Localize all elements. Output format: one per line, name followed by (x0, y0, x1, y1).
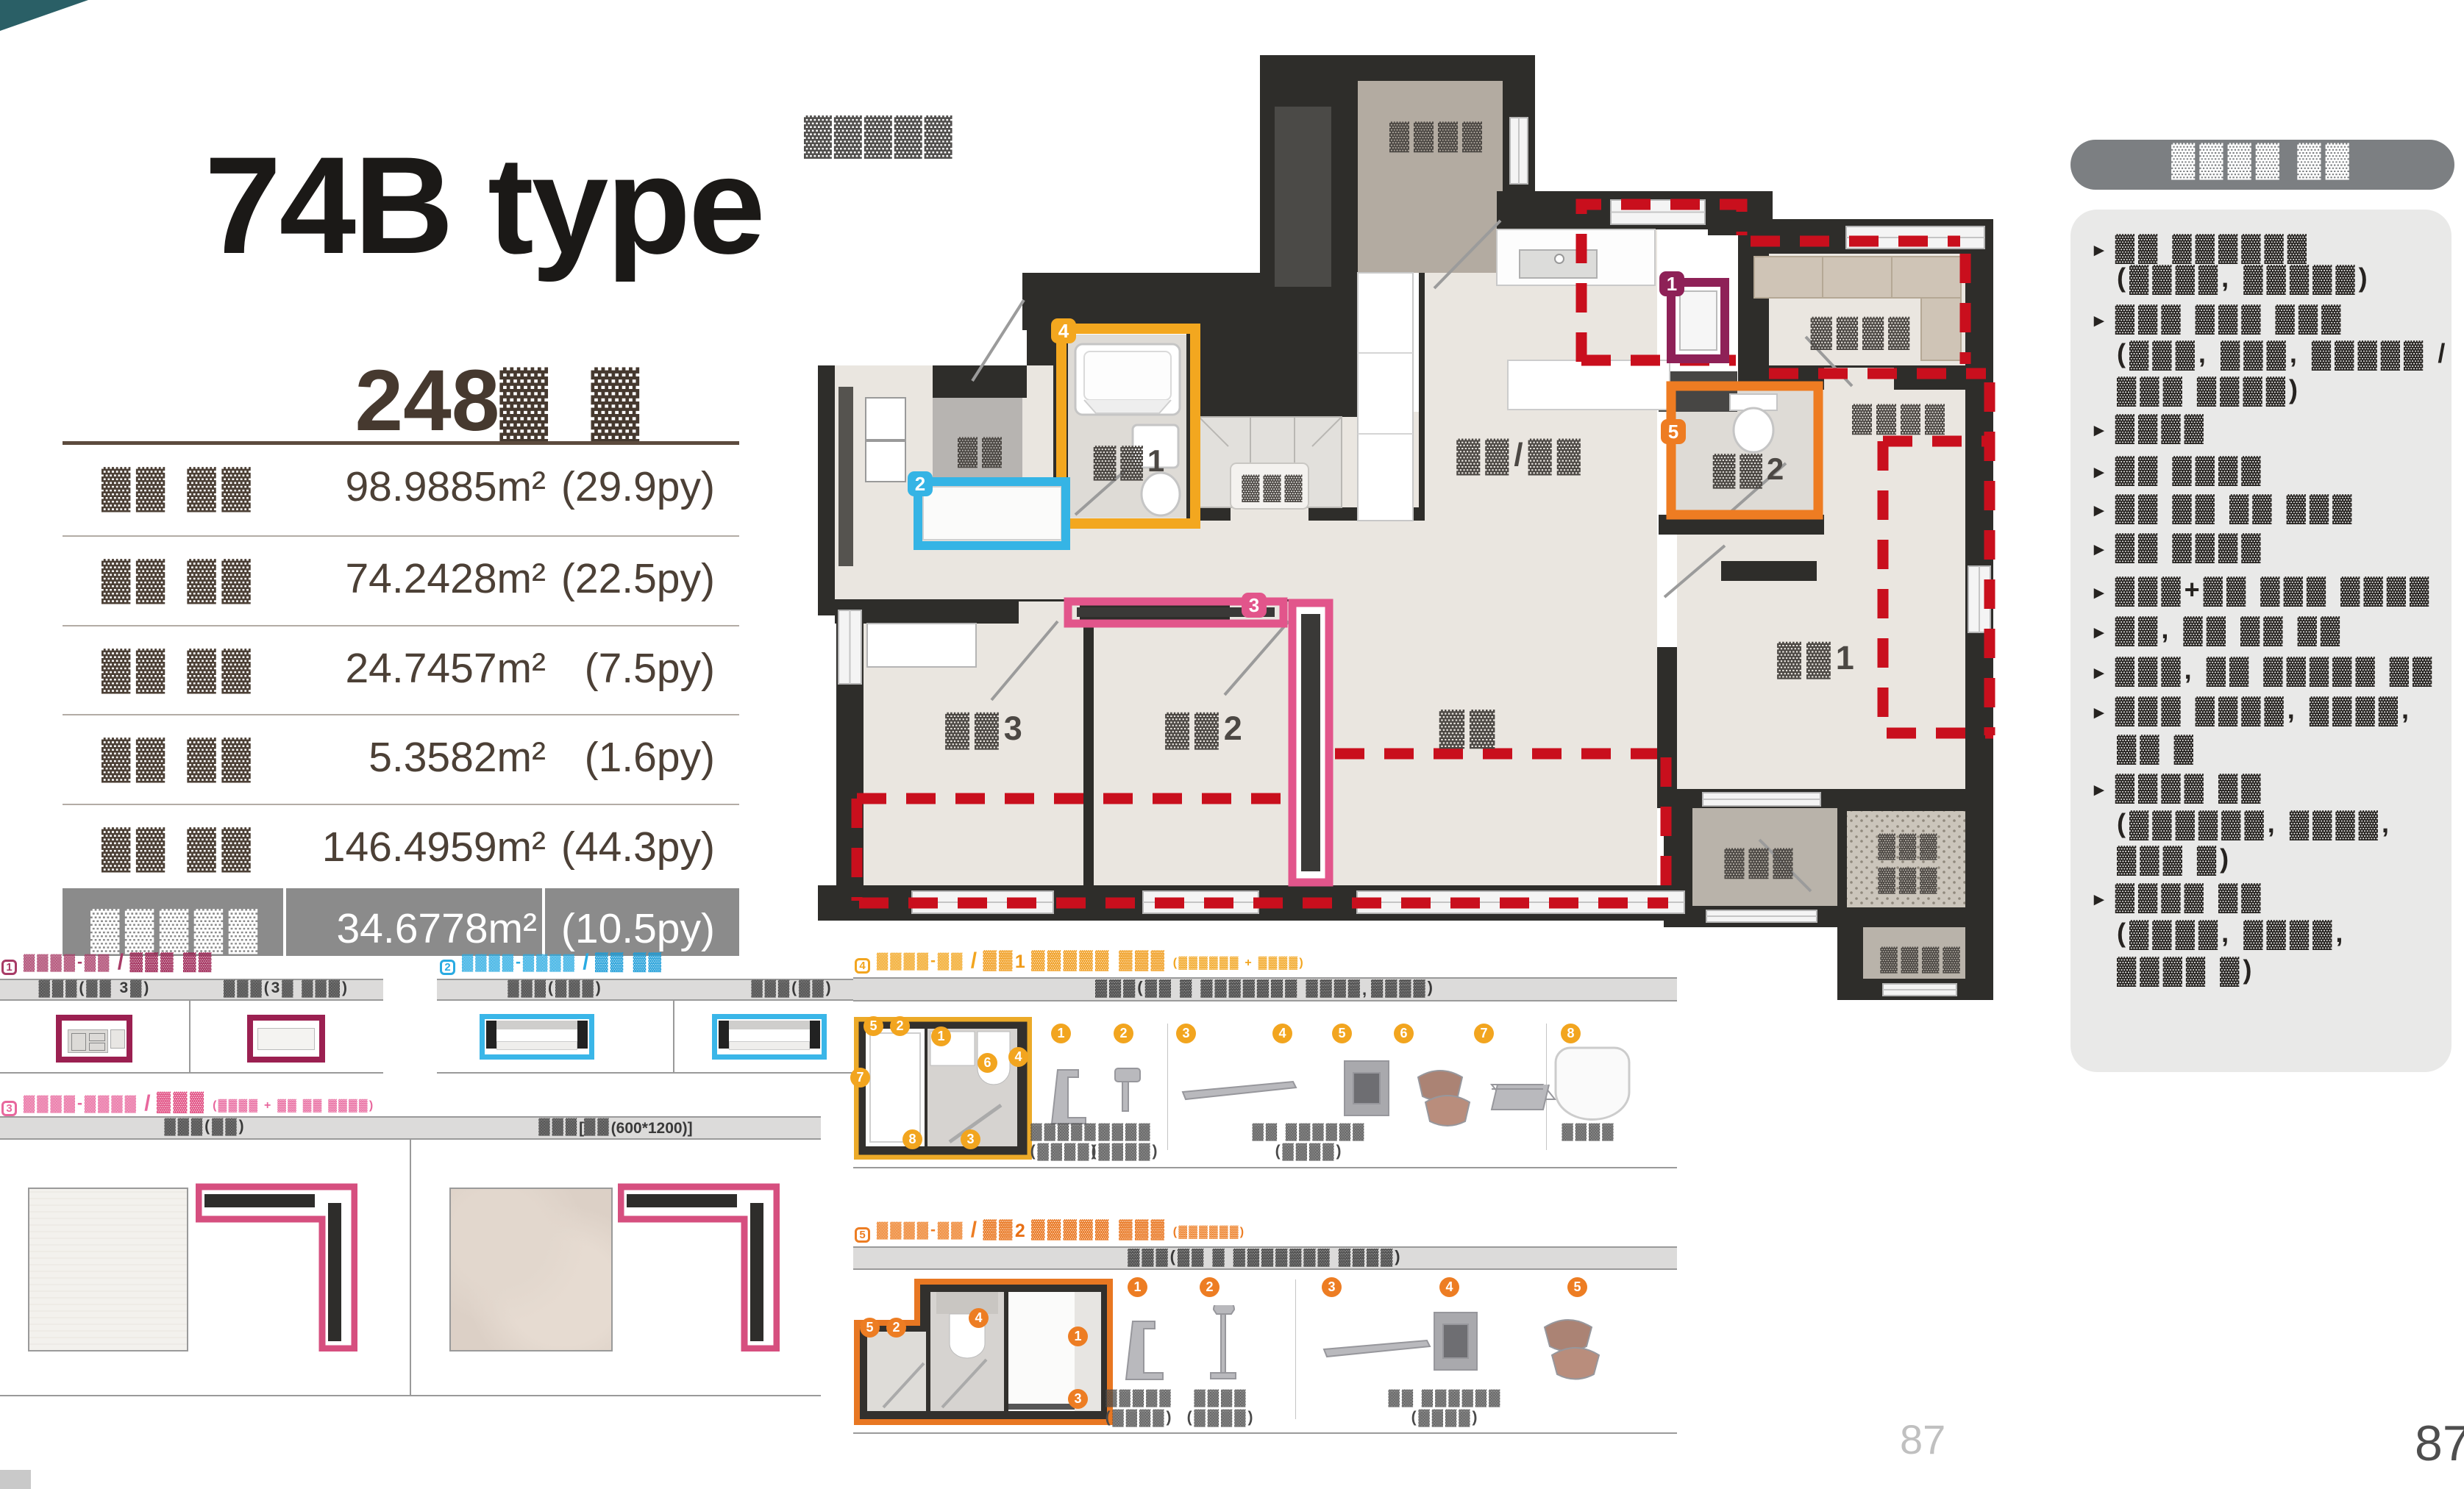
svg-text:▓▓1: ▓▓1 (1094, 443, 1169, 481)
svg-text:5: 5 (1668, 421, 1678, 443)
svg-text:▓▓1: ▓▓1 (1777, 639, 1859, 679)
svg-text:▓▓▓▓: ▓▓▓▓ (1852, 402, 1949, 435)
svg-text:3: 3 (1249, 594, 1259, 616)
svg-text:▓▓▓▓: ▓▓▓▓ (1880, 945, 1963, 974)
svg-text:▓▓▓: ▓▓▓ (1879, 832, 1941, 860)
svg-text:2: 2 (915, 473, 925, 495)
svg-text:▓▓▓▓: ▓▓▓▓ (1811, 315, 1915, 351)
svg-text:▓▓2: ▓▓2 (1165, 710, 1247, 750)
svg-text:1: 1 (1667, 273, 1677, 295)
svg-text:▓▓2: ▓▓2 (1713, 451, 1789, 489)
svg-text:▓▓▓: ▓▓▓ (1242, 473, 1306, 502)
svg-text:▓▓: ▓▓ (1439, 707, 1500, 749)
svg-text:▓▓▓: ▓▓▓ (1725, 846, 1798, 879)
svg-text:▓▓: ▓▓ (958, 435, 1006, 468)
svg-text:▓▓3: ▓▓3 (945, 710, 1028, 750)
svg-text:▓▓▓: ▓▓▓ (1879, 865, 1941, 894)
svg-text:▓▓▓▓▓: ▓▓▓▓▓ (804, 113, 955, 159)
svg-text:▓▓▓▓: ▓▓▓▓ (1389, 120, 1486, 153)
svg-text:▓▓/▓▓: ▓▓/▓▓ (1456, 437, 1586, 476)
svg-text:4: 4 (1058, 320, 1069, 342)
